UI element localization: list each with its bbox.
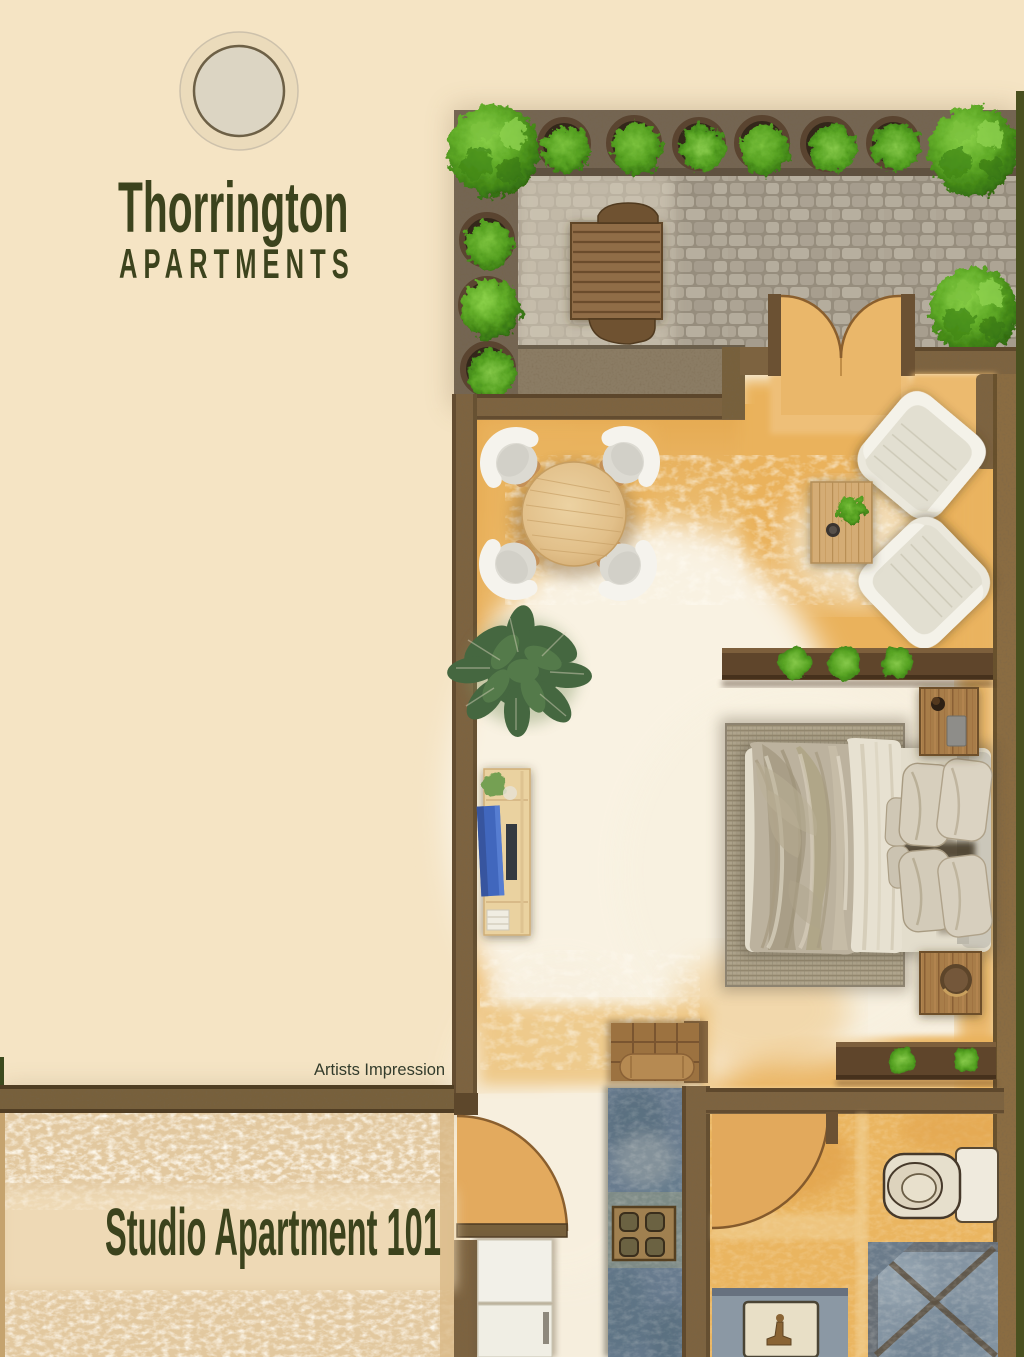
- svg-text:Studio Apartment 101: Studio Apartment 101: [105, 1195, 441, 1270]
- svg-text:Thorrington: Thorrington: [118, 169, 348, 248]
- svg-text:APARTMENTS: APARTMENTS: [119, 242, 355, 288]
- svg-text:Artists Impression: Artists Impression: [314, 1061, 445, 1079]
